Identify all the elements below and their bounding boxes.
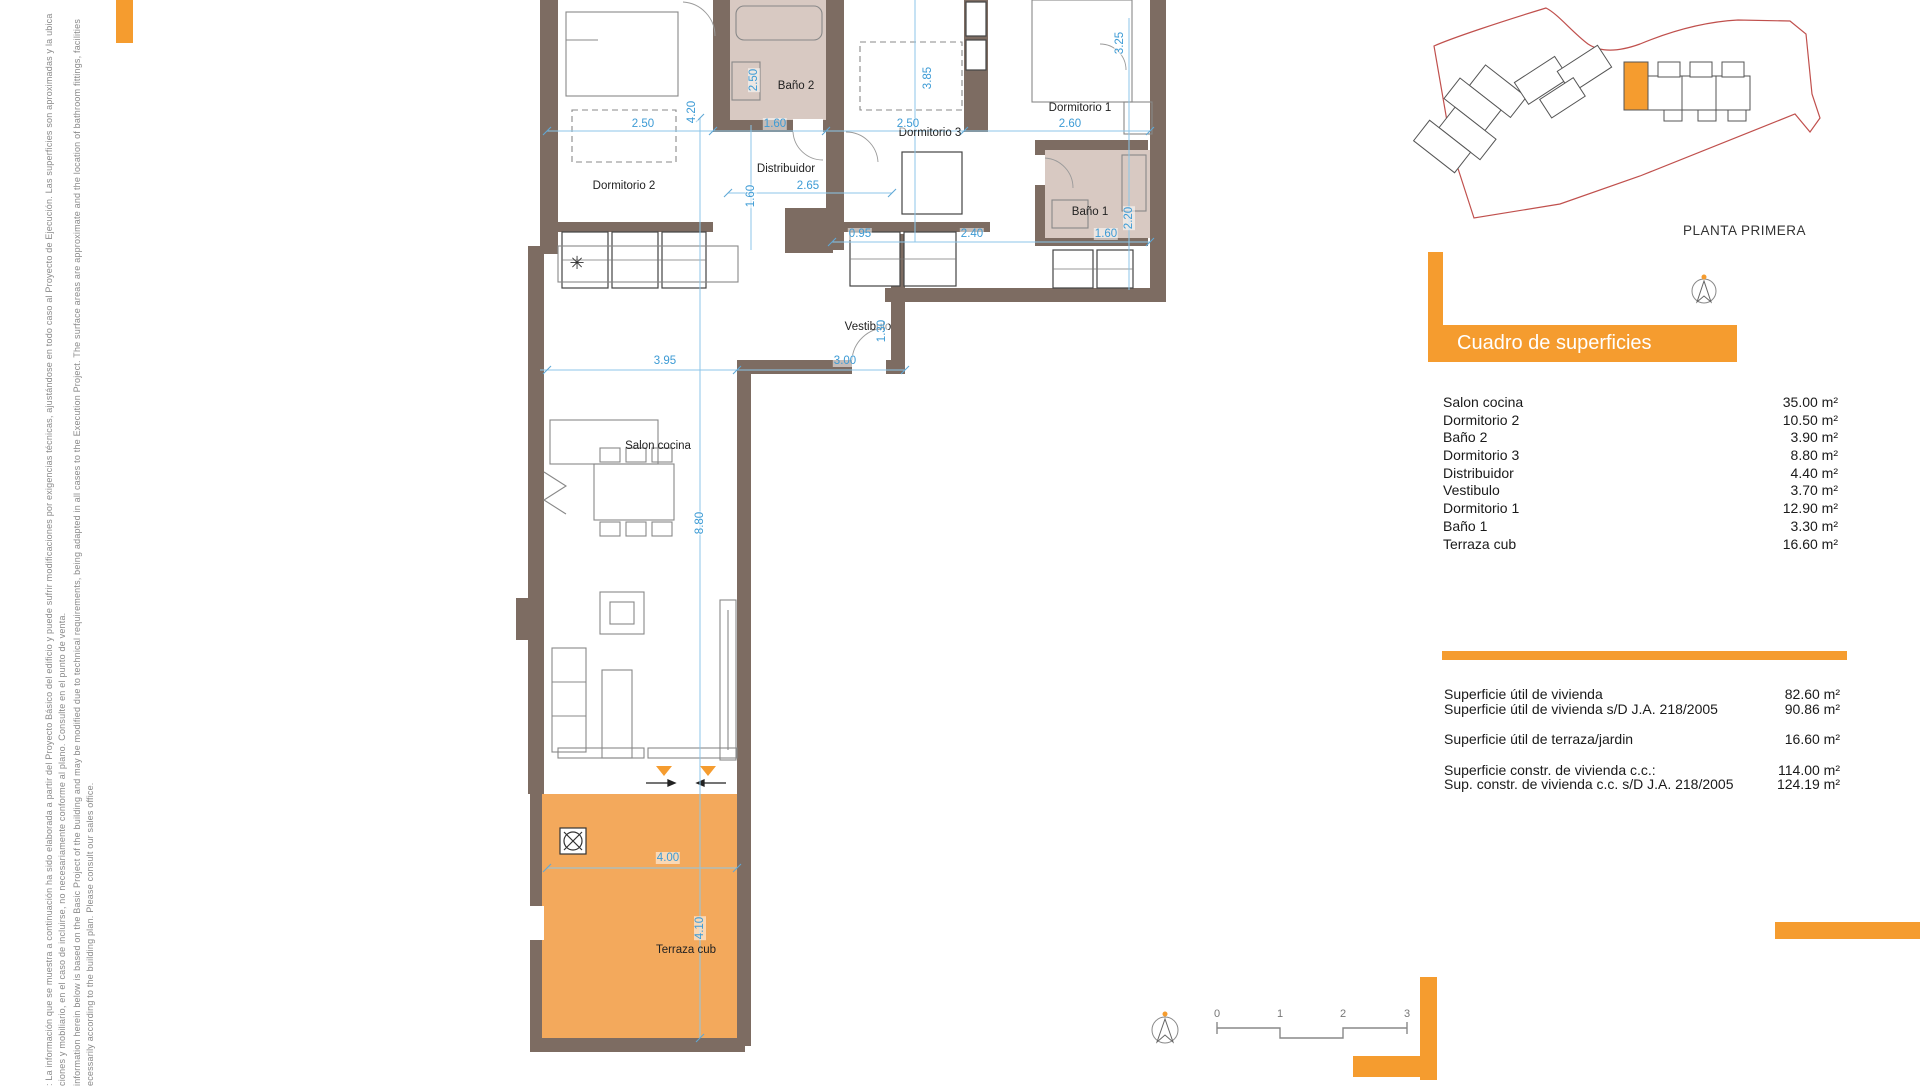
kitchen-appliance-icon: ✳ — [566, 252, 588, 274]
dimension-label: 1.60 — [745, 184, 757, 208]
dimension-label: 3.85 — [922, 66, 934, 90]
site-building-a — [1412, 58, 1528, 181]
disclaimer-line: information herein below is based on the… — [72, 19, 82, 1086]
table-row: Baño 23.90 m² — [1443, 429, 1838, 447]
scale-number: 0 — [1214, 1008, 1220, 1020]
dimension-label: 2.60 — [1058, 118, 1082, 130]
dimension-label: 3.95 — [653, 355, 677, 367]
row-label: Superficie útil de terraza/jardin — [1444, 732, 1633, 747]
dimension-label: 2.50 — [896, 118, 920, 130]
table-row: Superficie útil de vivienda82.60 m² — [1444, 687, 1840, 702]
dimension-label: 3.25 — [1114, 31, 1126, 55]
slider-arrow-icons — [646, 766, 726, 786]
dimension-label: 0.95 — [848, 228, 872, 240]
room-label: Baño 2 — [778, 80, 814, 92]
room-label: Dormitorio 1 — [1049, 102, 1112, 114]
bottom-accent-horizontal — [1353, 1056, 1437, 1077]
table-row: Superficie constr. de vivienda c.c.:114.… — [1444, 763, 1840, 778]
row-label: Superficie constr. de vivienda c.c.: — [1444, 763, 1656, 778]
row-label: Terraza cub — [1443, 536, 1516, 554]
right-edge-accent-bar — [1775, 922, 1920, 939]
floor-plan-sheet: { "colors": { "accent_orange": "#F59C2F"… — [0, 0, 1920, 1080]
row-value: 90.86 m² — [1785, 702, 1840, 717]
row-label: Salon cocina — [1443, 394, 1523, 412]
row-value: 35.00 m² — [1783, 394, 1838, 412]
dimension-label: 4.10 — [694, 916, 706, 940]
table-row: Dormitorio 210.50 m² — [1443, 412, 1838, 430]
row-value: 16.60 m² — [1783, 536, 1838, 554]
table-row: Baño 13.30 m² — [1443, 518, 1838, 536]
row-label: Dormitorio 2 — [1443, 412, 1519, 430]
row-value: 12.90 m² — [1783, 500, 1838, 518]
dimension-label: 2.40 — [960, 228, 984, 240]
dimension-label: 2.50 — [631, 118, 655, 130]
dimension-label: 8.80 — [694, 511, 706, 535]
site-plan-title: PLANTA PRIMERA — [1683, 223, 1806, 238]
disclaimer-line: : La información que se muestra a contin… — [44, 13, 54, 1086]
scale-number: 3 — [1404, 1008, 1410, 1020]
bathroom2-floor — [730, 0, 826, 120]
table-row: Dormitorio 112.90 m² — [1443, 500, 1838, 518]
table-accent-bar — [1428, 252, 1443, 362]
table-row: Terraza cub16.60 m² — [1443, 536, 1838, 554]
graphic-scale-bar — [1217, 1022, 1407, 1038]
row-value: 3.70 m² — [1791, 482, 1838, 500]
room-label: Terraza cub — [656, 944, 716, 956]
scale-number: 1 — [1277, 1008, 1283, 1020]
compass-icon — [1152, 1012, 1178, 1044]
room-label: Dormitorio 2 — [593, 180, 656, 192]
row-label: Superficie útil de vivienda — [1444, 687, 1603, 702]
dimension-label: 4.20 — [686, 100, 698, 124]
room-label: Salon cocina — [625, 440, 691, 452]
table-row: Salon cocina35.00 m² — [1443, 394, 1838, 412]
row-label: Dormitorio 1 — [1443, 500, 1519, 518]
dimension-label: 2.50 — [748, 68, 760, 92]
room-label: Distribuidor — [757, 163, 815, 175]
apartment-plan — [516, 0, 1166, 1052]
row-value: 124.19 m² — [1777, 777, 1840, 792]
dimension-label: 2.65 — [796, 180, 820, 192]
table-row: Distribuidor4.40 m² — [1443, 465, 1838, 483]
dimension-label: 2.20 — [1123, 206, 1135, 230]
row-label: Distribuidor — [1443, 465, 1514, 483]
row-label: Dormitorio 3 — [1443, 447, 1519, 465]
surface-table-rows: Salon cocina35.00 m²Dormitorio 210.50 m²… — [1443, 394, 1838, 553]
row-value: 10.50 m² — [1783, 412, 1838, 430]
highlighted-unit — [1624, 62, 1648, 110]
site-building-b — [1514, 34, 1617, 125]
dimension-label: 1.60 — [763, 118, 787, 130]
disclaimer-line: ciones y mobiliario, en el caso de inclu… — [57, 613, 67, 1086]
table-row: Superficie útil de terraza/jardin16.60 m… — [1444, 732, 1840, 747]
row-value: 16.60 m² — [1785, 732, 1840, 747]
row-value: 4.40 m² — [1791, 465, 1838, 483]
row-label: Vestibulo — [1443, 482, 1500, 500]
surface-table-title: Cuadro de superficies — [1443, 325, 1737, 362]
dimension-label: 3.00 — [833, 355, 857, 367]
row-value: 82.60 m² — [1785, 687, 1840, 702]
row-label: Baño 2 — [1443, 429, 1487, 447]
dimension-label: 4.00 — [656, 852, 680, 864]
room-label: Baño 1 — [1072, 206, 1108, 218]
row-value: 114.00 m² — [1778, 763, 1840, 778]
row-value: 8.80 m² — [1791, 447, 1838, 465]
row-value: 3.30 m² — [1791, 518, 1838, 536]
summary-rows: Superficie útil de vivienda82.60 m²Super… — [1444, 687, 1840, 792]
table-row: Vestibulo3.70 m² — [1443, 482, 1838, 500]
site-plan — [1412, 8, 1820, 303]
row-value: 3.90 m² — [1791, 429, 1838, 447]
row-label: Superficie útil de vivienda s/D J.A. 218… — [1444, 702, 1718, 717]
furniture — [544, 0, 1152, 760]
table-row: Superficie útil de vivienda s/D J.A. 218… — [1444, 702, 1840, 717]
summary-separator-bar — [1442, 651, 1847, 660]
compass-icon — [1692, 275, 1716, 304]
row-label: Sup. constr. de vivienda c.c. s/D J.A. 2… — [1444, 777, 1734, 792]
corner-accent-mark — [116, 0, 133, 43]
scale-number: 2 — [1340, 1008, 1346, 1020]
table-row: Dormitorio 38.80 m² — [1443, 447, 1838, 465]
dimension-label: 1.60 — [1094, 228, 1118, 240]
site-building-c — [1648, 62, 1750, 121]
row-label: Baño 1 — [1443, 518, 1487, 536]
disclaimer-line: ecessarily according to the building pla… — [85, 782, 95, 1086]
terrace-light-icon — [560, 828, 586, 854]
table-row: Sup. constr. de vivienda c.c. s/D J.A. 2… — [1444, 777, 1840, 792]
dimension-label: 1.30 — [876, 319, 888, 343]
